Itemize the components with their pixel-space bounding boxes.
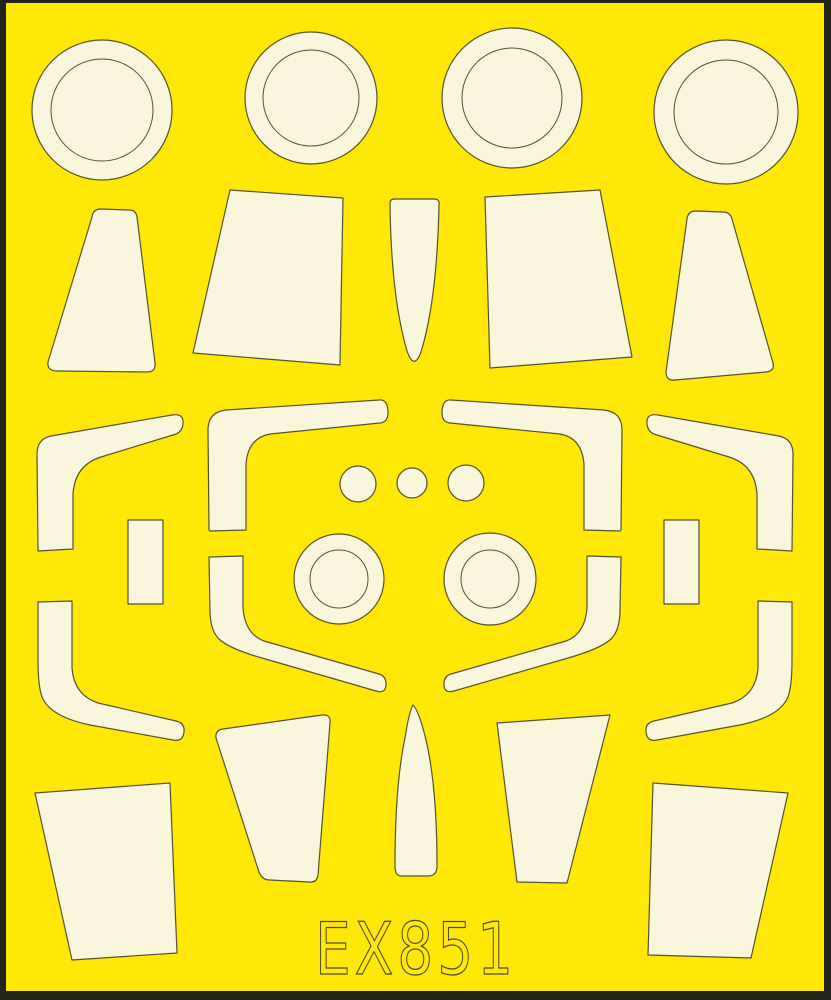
rect-mask-left <box>128 520 163 604</box>
dot-mask-3 <box>448 465 484 501</box>
bullseye-mask-right <box>444 533 536 625</box>
round-mask-4 <box>654 40 798 184</box>
rect-mask-right <box>664 520 699 604</box>
lower-panel-row <box>216 705 610 883</box>
round-mask-1 <box>32 40 172 180</box>
round-mask-2 <box>245 32 377 164</box>
mask-sheet: EX851 <box>0 0 831 1000</box>
product-code-text: EX851 <box>315 907 517 991</box>
round-mask-3 <box>442 28 582 168</box>
dot-mask-1 <box>340 466 376 502</box>
bullseye-mask-left <box>294 534 384 624</box>
dot-mask-2 <box>397 468 427 498</box>
